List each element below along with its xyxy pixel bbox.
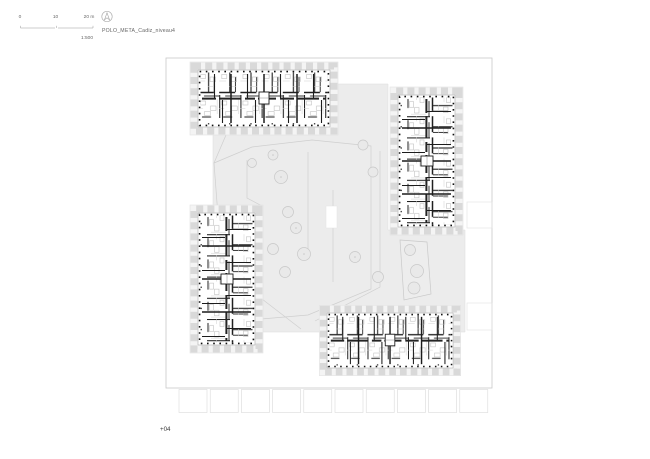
level-label: +04: [160, 426, 171, 433]
north-arrow-icon: [102, 11, 112, 21]
scale-tick-0: 0: [19, 14, 22, 20]
courtyard-opening: [326, 206, 337, 228]
scale-tick-10: 10: [53, 14, 59, 20]
building-block-east: [390, 87, 463, 235]
architectural-plan-page: 0 10 20 m 1:500 POLO_META_Cadiz_niveau4 …: [0, 0, 650, 459]
scale-bar: 0 10 20 m 1:500: [19, 14, 95, 41]
scale-ratio-label: 1:500: [81, 35, 93, 41]
building-block-south: [319, 305, 460, 375]
planted-plot: [400, 240, 431, 300]
east-annex-outlines: [467, 202, 492, 330]
scale-tick-20: 20 m: [84, 14, 95, 20]
south-plot-row: [179, 390, 488, 413]
floor-plan-canvas: 0 10 20 m 1:500 POLO_META_Cadiz_niveau4 …: [0, 0, 650, 459]
building-block-north: [190, 62, 338, 135]
building-block-west: [190, 205, 263, 353]
drawing-title: POLO_META_Cadiz_niveau4: [102, 28, 175, 34]
